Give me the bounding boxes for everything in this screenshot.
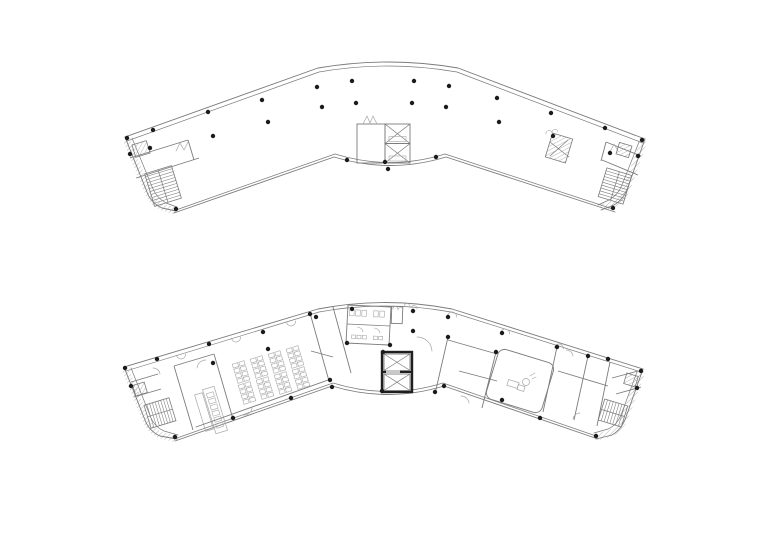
- desk-cluster: [292, 369, 298, 374]
- desk-cluster: [243, 376, 249, 381]
- stair-tread: [601, 400, 607, 421]
- desk-cluster: [246, 387, 252, 392]
- column: [447, 84, 451, 88]
- desk-cluster: [258, 384, 264, 389]
- column: [386, 167, 390, 171]
- desk-cluster: [235, 373, 241, 378]
- column: [174, 207, 178, 211]
- desk-cluster: [253, 368, 259, 373]
- stair-tread: [603, 182, 628, 190]
- radiator: [177, 312, 564, 359]
- column: [330, 385, 334, 389]
- column: [211, 134, 215, 138]
- desk-cluster: [294, 351, 300, 356]
- door-swing: [546, 129, 558, 134]
- desk-cluster: [291, 363, 297, 368]
- column: [350, 307, 354, 311]
- desk-cluster: [289, 358, 295, 363]
- sinks: [362, 335, 366, 339]
- column: [350, 79, 354, 83]
- upper-floor-plan: [125, 62, 645, 213]
- column: [500, 398, 504, 402]
- stair-tread: [153, 192, 180, 200]
- kitchen-appliances: [206, 392, 214, 398]
- wall: [333, 307, 351, 373]
- desk-cluster: [273, 368, 279, 373]
- column: [123, 366, 127, 370]
- desk-cluster: [232, 361, 250, 384]
- column: [345, 158, 349, 162]
- wall: [597, 362, 610, 426]
- column: [611, 206, 615, 210]
- stair-tread: [602, 185, 627, 193]
- wall: [543, 347, 557, 412]
- wall: [136, 158, 199, 178]
- column: [314, 315, 318, 319]
- column: [173, 435, 177, 439]
- column: [380, 389, 384, 393]
- column: [639, 369, 643, 373]
- column: [260, 98, 264, 102]
- desk-cluster: [268, 353, 274, 358]
- column: [125, 136, 129, 140]
- desk-cluster: [248, 392, 254, 397]
- stair-tread: [147, 175, 174, 183]
- wall: [188, 140, 194, 160]
- column: [206, 110, 210, 114]
- desk-cluster: [293, 346, 299, 351]
- desk-cluster: [279, 389, 285, 394]
- column: [497, 120, 501, 124]
- west-end-wall-hatch: [125, 369, 176, 439]
- desk-cluster: [299, 367, 305, 372]
- desk-cluster: [260, 366, 266, 371]
- chair: [523, 379, 530, 386]
- desk-cluster: [257, 356, 263, 361]
- column: [383, 160, 387, 164]
- door-swing: [417, 337, 432, 351]
- column: [635, 386, 639, 390]
- column: [442, 384, 446, 388]
- door-swing: [357, 327, 380, 333]
- column: [289, 396, 293, 400]
- stair-tread: [166, 399, 173, 422]
- wc-stalls: [374, 311, 379, 317]
- stair-tread: [148, 177, 175, 185]
- desk-cluster: [297, 361, 303, 366]
- wc-stalls: [362, 310, 367, 316]
- column: [640, 138, 644, 142]
- inner-wall-top: [126, 306, 641, 372]
- elevator-car: [389, 137, 406, 142]
- column: [129, 384, 133, 388]
- sinks: [352, 335, 367, 339]
- stair-tread: [163, 399, 170, 422]
- column: [151, 128, 155, 132]
- stair-tread: [155, 402, 162, 425]
- desk-cluster: [292, 367, 310, 390]
- desk-cluster: [279, 366, 285, 371]
- core-room: [357, 124, 385, 163]
- wall: [347, 324, 390, 326]
- desk-cluster: [296, 356, 302, 361]
- column: [411, 309, 415, 313]
- column: [586, 354, 590, 358]
- desk-cluster: [294, 374, 300, 379]
- desk-cluster: [284, 382, 290, 387]
- desk-cluster: [250, 358, 256, 363]
- kitchen-counter: [195, 393, 214, 432]
- desk-cluster: [232, 363, 238, 368]
- sinks: [352, 335, 356, 339]
- wc-stalls: [374, 311, 385, 317]
- desk-cluster: [268, 351, 286, 374]
- kitchen-appliances: [208, 398, 216, 404]
- stair-tread: [146, 172, 173, 180]
- desk-cluster: [261, 371, 267, 376]
- desk-cluster: [264, 382, 270, 387]
- kitchen-appliances: [210, 404, 218, 410]
- door-swing: [566, 350, 580, 419]
- desk-cluster: [275, 351, 281, 356]
- desk-cluster: [256, 377, 274, 400]
- column: [608, 151, 612, 155]
- wall: [174, 366, 193, 430]
- desk-cluster: [270, 358, 276, 363]
- stair-tread: [613, 403, 619, 424]
- elevator-car: [389, 156, 406, 161]
- door-swing: [153, 368, 160, 374]
- desk-cluster: [240, 389, 246, 394]
- column: [434, 155, 438, 159]
- column: [266, 347, 270, 351]
- column: [345, 341, 349, 345]
- elevator-shaft: [384, 374, 410, 391]
- desk-cluster: [302, 377, 308, 382]
- door-swing: [197, 360, 206, 368]
- stair-tread: [604, 401, 610, 422]
- sinks: [357, 335, 361, 339]
- desk-cluster: [286, 348, 292, 353]
- desk-cluster: [277, 384, 283, 389]
- desk-cluster: [267, 392, 273, 397]
- coat-hooks: [404, 303, 417, 309]
- desk-cluster: [285, 387, 291, 392]
- desk-cluster: [276, 356, 282, 361]
- column: [381, 350, 385, 354]
- column: [266, 120, 270, 124]
- column: [412, 79, 416, 83]
- column: [308, 312, 312, 316]
- column: [549, 111, 553, 115]
- column: [231, 416, 235, 420]
- column: [155, 357, 159, 361]
- desk-cluster: [234, 368, 240, 373]
- double-door: [363, 116, 377, 124]
- stair-tread: [150, 183, 177, 191]
- desk-cluster: [250, 356, 268, 379]
- column: [261, 330, 265, 334]
- column: [606, 357, 610, 361]
- sinks: [379, 336, 383, 340]
- column: [594, 434, 598, 438]
- plan-canvas: [0, 0, 780, 551]
- desk-cluster: [261, 394, 267, 399]
- kitchen-appliances: [212, 410, 220, 416]
- sinks: [373, 336, 382, 340]
- desk-cluster: [295, 379, 301, 384]
- desk-cluster: [239, 361, 245, 366]
- desk-cluster: [237, 378, 243, 383]
- desk-cluster: [238, 382, 256, 405]
- column: [446, 315, 450, 319]
- stair-tread: [152, 189, 179, 197]
- wall: [214, 354, 233, 419]
- stair-tread: [149, 180, 176, 188]
- wc-stalls: [356, 310, 361, 316]
- outer-wall-bottom: [175, 386, 598, 441]
- desk-cluster: [282, 377, 288, 382]
- floor-plan-sheet: [0, 0, 780, 551]
- outer-wall-bottom: [174, 157, 615, 213]
- stair-tread: [161, 400, 168, 423]
- column: [636, 154, 640, 158]
- desk-cluster: [263, 377, 269, 382]
- desk-cluster: [300, 372, 306, 377]
- stair-tread: [607, 402, 613, 423]
- column: [354, 101, 358, 105]
- wall: [174, 354, 214, 366]
- column: [494, 350, 498, 354]
- stair-tread: [604, 176, 629, 184]
- desk-cluster: [242, 371, 248, 376]
- stair-tread: [603, 179, 628, 187]
- column: [207, 342, 211, 346]
- elevator-door: [386, 370, 400, 374]
- desk-cluster: [258, 361, 264, 366]
- desk-cluster: [281, 372, 287, 377]
- column: [411, 329, 415, 333]
- elevator-shaft: [384, 354, 410, 371]
- stair-tread: [610, 402, 616, 423]
- column: [148, 146, 152, 150]
- desk-cluster: [288, 353, 294, 358]
- column: [433, 390, 437, 394]
- desk-cluster: [240, 366, 246, 371]
- desk-cluster: [271, 363, 277, 368]
- desk-cluster: [249, 397, 255, 402]
- plant: [530, 373, 536, 379]
- desk-cluster: [286, 346, 304, 369]
- desk-cluster: [256, 379, 262, 384]
- desk-cluster: [278, 361, 284, 366]
- desk-cluster: [274, 374, 280, 379]
- desk-cluster: [274, 372, 292, 395]
- desk-cluster: [259, 389, 265, 394]
- outer-wall-top: [124, 303, 643, 370]
- desk-cluster: [255, 373, 261, 378]
- wall: [310, 313, 329, 381]
- column: [328, 378, 332, 382]
- column: [551, 134, 555, 138]
- column: [410, 101, 414, 105]
- column: [388, 343, 392, 347]
- sinks: [373, 336, 377, 340]
- column: [603, 126, 607, 130]
- column: [315, 85, 319, 89]
- desk-cluster: [266, 387, 272, 392]
- wall: [574, 356, 588, 420]
- inner-wall-bottom: [176, 154, 613, 210]
- column: [500, 331, 504, 335]
- wall: [448, 340, 497, 354]
- stair-tread: [151, 186, 178, 194]
- desk-cluster: [241, 394, 247, 399]
- stair-tread: [158, 401, 165, 424]
- column: [495, 96, 499, 100]
- desk-cluster: [297, 384, 303, 389]
- desk-cluster: [238, 384, 244, 389]
- column: [128, 152, 132, 156]
- column: [444, 105, 448, 109]
- wc-stalls: [380, 311, 385, 317]
- desk: [517, 385, 525, 392]
- desk-cluster: [243, 399, 249, 404]
- desk-cluster: [252, 363, 258, 368]
- desk-cluster: [245, 382, 251, 387]
- column: [538, 416, 542, 420]
- column: [320, 105, 324, 109]
- column: [446, 335, 450, 339]
- lower-floor-plan: [123, 303, 643, 442]
- wall: [601, 142, 606, 161]
- stair-divider: [148, 409, 173, 417]
- shaft-hatched: [616, 142, 632, 157]
- column: [211, 361, 215, 365]
- column: [555, 345, 559, 349]
- desk-cluster: [276, 379, 282, 384]
- shaft-hatched: [132, 141, 150, 158]
- door-swing: [461, 396, 469, 403]
